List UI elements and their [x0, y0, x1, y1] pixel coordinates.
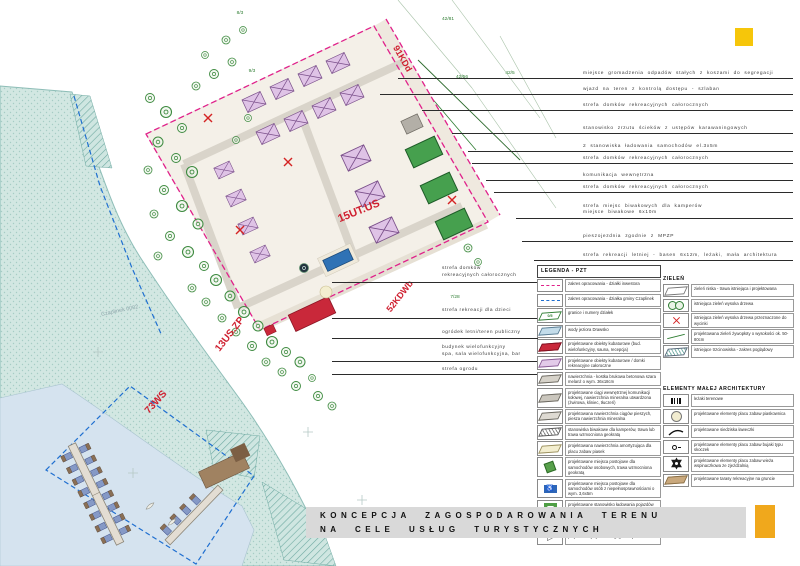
annotation-label: komunikacja wewnętrzna — [583, 173, 654, 179]
annotation-label: strefa domków rekreacyjnych całorocznych — [583, 103, 708, 109]
site-plan-sheet: 91KDd 15UT.US 52KDWb 13US.ZP 73WS Czapli… — [0, 0, 800, 566]
legend-row: 0/5 granice i numery działek — [537, 308, 661, 323]
terrace-icon — [663, 474, 689, 487]
green-parking-icon — [537, 457, 563, 477]
legend-row: nawierzchnia - kostka brukowa betonowa s… — [537, 372, 661, 387]
annotation-label: ogródek letni/teren publiczny — [442, 329, 520, 336]
legend-row: ♿ projektowane miejsca postojowe dla sam… — [537, 479, 661, 499]
legend-label: projektowane elementy placu zabaw wieża … — [691, 456, 794, 472]
parcel-number: 9/3 — [249, 68, 256, 74]
zone-label-13uszp: 13US.ZP — [213, 315, 247, 354]
legend-pzt-title: LEGENDA - PZT — [537, 265, 661, 278]
title-line-1: KONCEPCJA ZAGOSPODAROWANIA TERENU — [320, 509, 746, 523]
legend-label: zakres opracowania - działka gminy Czapl… — [565, 294, 661, 307]
playground-sand-area — [320, 286, 332, 298]
annotation-label: strefa ogrodu — [442, 366, 478, 373]
hedge-icon — [663, 329, 689, 344]
lavender-building-icon — [537, 356, 563, 371]
parcel-number: 42/56 — [456, 74, 468, 80]
leader-line — [468, 151, 793, 152]
reeds-icon — [663, 345, 689, 358]
leader-line — [486, 180, 793, 181]
legend-label: projektowane ciągi wewnętrznej komunikac… — [565, 388, 661, 408]
legend-pzt: LEGENDA - PZT zakres opracowania - dział… — [537, 265, 661, 545]
annotation-label: pieszojezdnia zgodnie z MPZP — [583, 234, 674, 240]
leader-line — [332, 361, 538, 362]
paver-surface-icon — [537, 372, 563, 387]
legend-row: zieleń niska - trawa istniejąca i projek… — [663, 284, 794, 297]
legend-label: projektowana nawierzchnia amortyzująca d… — [565, 441, 661, 456]
disabled-parking-icon: ♿ — [537, 479, 563, 499]
red-building-icon — [537, 339, 563, 354]
annotation-label: 2 stanowiska ładowania samochodów el.3x5… — [583, 144, 718, 150]
parcel-number: 7/28 — [450, 294, 460, 300]
legend-row: wody jeziora Drawsko — [537, 325, 661, 338]
gmina-boundary-icon — [537, 294, 563, 307]
sand-surface-icon — [537, 441, 563, 456]
yellow-marker-bottom — [755, 505, 775, 538]
legend-label: projektowane obiekty kubaturowe / domki … — [565, 356, 661, 371]
parcel-number: 42/5 — [505, 70, 515, 76]
legend-row: projektowana nawierzchnia amortyzująca d… — [537, 441, 661, 456]
legend-label: istniejąca zieleń wysoka drzewa — [691, 299, 794, 312]
legend-label: nawierzchnia - kostka brukowa betonowa s… — [565, 372, 661, 387]
legend-label: projektowana nawierzchnia ciągów pieszyc… — [565, 409, 661, 424]
camper-pitch-icon — [537, 425, 563, 440]
legend-row: projektowane obiekty kubaturowe / domki … — [537, 356, 661, 371]
leader-line — [380, 94, 793, 95]
legend-row: projektowane siedziska ławeczki — [663, 425, 794, 438]
sunbeds-icon — [663, 394, 689, 407]
annotation-label: wjazd na teren z kontrolą dostępu - szla… — [583, 87, 720, 93]
legend-row: projektowane tarasy rekreacyjne na grunc… — [663, 474, 794, 487]
leader-line — [332, 374, 538, 375]
fountain — [300, 264, 309, 273]
annotation-label: budynek wielofunkcyjny spa, sala wielofu… — [442, 344, 521, 358]
legend-label: projektowane obiekty kubaturowe (bud. wi… — [565, 339, 661, 354]
legend-row: zakres opracowania - działki inwestora — [537, 279, 661, 292]
parcel-number: 42/81 — [442, 16, 454, 22]
legend-row: zakres opracowania - działka gminy Czapl… — [537, 294, 661, 307]
legend-zielen: ZIELEŃ zieleń niska - trawa istniejąca i… — [663, 276, 794, 358]
yellow-marker-top — [735, 28, 753, 46]
annotation-label: strefa rekreacji dla dzieci — [442, 307, 511, 314]
annotation-label: strefa domków rekreacyjnych całorocznych — [442, 265, 517, 279]
leader-line — [398, 78, 793, 79]
annotation-label: strefa domków rekreacyjnych całorocznych — [583, 185, 708, 191]
legend-label: projektowane tarasy rekreacyjne na grunc… — [691, 474, 794, 487]
climbing-tower-icon — [663, 456, 689, 472]
legend-label: zakres opracowania - działki inwestora — [565, 279, 661, 292]
parcel-boundary-icon: 0/5 — [537, 308, 563, 323]
legend-row: leżaki terenowe — [663, 394, 794, 407]
legend-label: granice i numery działek — [565, 308, 661, 323]
legend-label: projektowane miejsca postojowe dla samoc… — [565, 457, 661, 477]
legend-row: projektowane elementy placu zabaw wieża … — [663, 456, 794, 472]
annotation-label: miejsce gromadzenia odpadów stałych z ko… — [583, 71, 773, 77]
leader-line — [452, 133, 793, 134]
path-surface-icon — [537, 409, 563, 424]
leader-line — [516, 218, 793, 219]
legend-row: projektowane miejsca postojowe dla samoc… — [537, 457, 661, 477]
leader-line — [422, 110, 793, 111]
legend-label: stanowiska biwakowe dla kamperów, trawa … — [565, 425, 661, 440]
title-block: KONCEPCJA ZAGOSPODAROWANIA TERENU NA CEL… — [306, 507, 746, 538]
sandbox-icon — [663, 409, 689, 424]
title-line-2: NA CELE USŁUG TURYSTYCZNYCH — [320, 523, 746, 537]
leader-line — [522, 241, 793, 242]
legend-row: projektowane elementy placu zabaw bujaki… — [663, 440, 794, 455]
legend-label: istniejąca zieleń wysoka drzewa przeznac… — [691, 313, 794, 328]
annotation-label: stanowisko zrzutu ścieków z ustępów kara… — [583, 126, 748, 132]
annotation-label: strefa domków rekreacyjnych całorocznych — [583, 156, 708, 162]
legend-label: projektowane siedziska ławeczki — [691, 425, 794, 438]
legend-mala-architektura: ELEMENTY MAŁEJ ARCHITEKTURY leżaki teren… — [663, 386, 794, 487]
legend-label: leżaki terenowe — [691, 394, 794, 407]
legend-row: stanowiska biwakowe dla kamperów, trawa … — [537, 425, 661, 440]
legend-row: istniejąca zieleń wysoka drzewa — [663, 299, 794, 312]
tree-removal-icon — [663, 313, 689, 328]
parcel-icon-number: 0/5 — [548, 314, 553, 318]
legend-label: projektowane miejsca postojowe dla samoc… — [565, 479, 661, 499]
grass-swatch-icon — [663, 284, 689, 297]
legend-label: projektowane elementy placu zabaw bujaki… — [691, 440, 794, 455]
leader-line — [332, 338, 538, 339]
leader-line — [494, 192, 793, 193]
legend-mala-title: ELEMENTY MAŁEJ ARCHITEKTURY — [663, 386, 794, 393]
legend-row: projektowane elementy placu zabaw piasko… — [663, 409, 794, 424]
legend-row: projektowana zieleń żywopłoty o wysokośc… — [663, 329, 794, 344]
spring-rider-icon — [663, 440, 689, 455]
legend-row: istniejąca zieleń wysoka drzewa przeznac… — [663, 313, 794, 328]
annotation-label: strefa miejsc biwakowych dla kamperów mi… — [583, 204, 702, 217]
existing-trees-icon — [663, 299, 689, 312]
legend-label: istniejące trzcinowiska - zakres poglądo… — [691, 345, 794, 358]
leader-line — [332, 318, 538, 319]
legend-label: zieleń niska - trawa istniejąca i projek… — [691, 284, 794, 297]
road-surface-icon — [537, 388, 563, 408]
legend-label: projektowana zieleń żywopłoty o wysokośc… — [691, 329, 794, 344]
legend-zielen-title: ZIELEŃ — [663, 276, 794, 283]
legend-row: projektowane ciągi wewnętrznej komunikac… — [537, 388, 661, 408]
leader-line — [534, 260, 793, 261]
leader-line — [472, 163, 793, 164]
annotation-label: strefa rekreacji letniej - basen 6x12m, … — [583, 253, 777, 259]
leader-line — [332, 282, 538, 283]
zone-label-52kdwb: 52KDWb — [384, 278, 415, 314]
legend-row: projektowana nawierzchnia ciągów pieszyc… — [537, 409, 661, 424]
legend-label: wody jeziora Drawsko — [565, 325, 661, 338]
parcel-number: 8/3 — [237, 10, 244, 16]
legend-row: projektowane obiekty kubaturowe (bud. wi… — [537, 339, 661, 354]
bench-icon — [663, 425, 689, 438]
legend-label: projektowane elementy placu zabaw piasko… — [691, 409, 794, 424]
investor-boundary-icon — [537, 279, 563, 292]
legend-row: istniejące trzcinowiska - zakres poglądo… — [663, 345, 794, 358]
lake-water-icon — [537, 325, 563, 338]
